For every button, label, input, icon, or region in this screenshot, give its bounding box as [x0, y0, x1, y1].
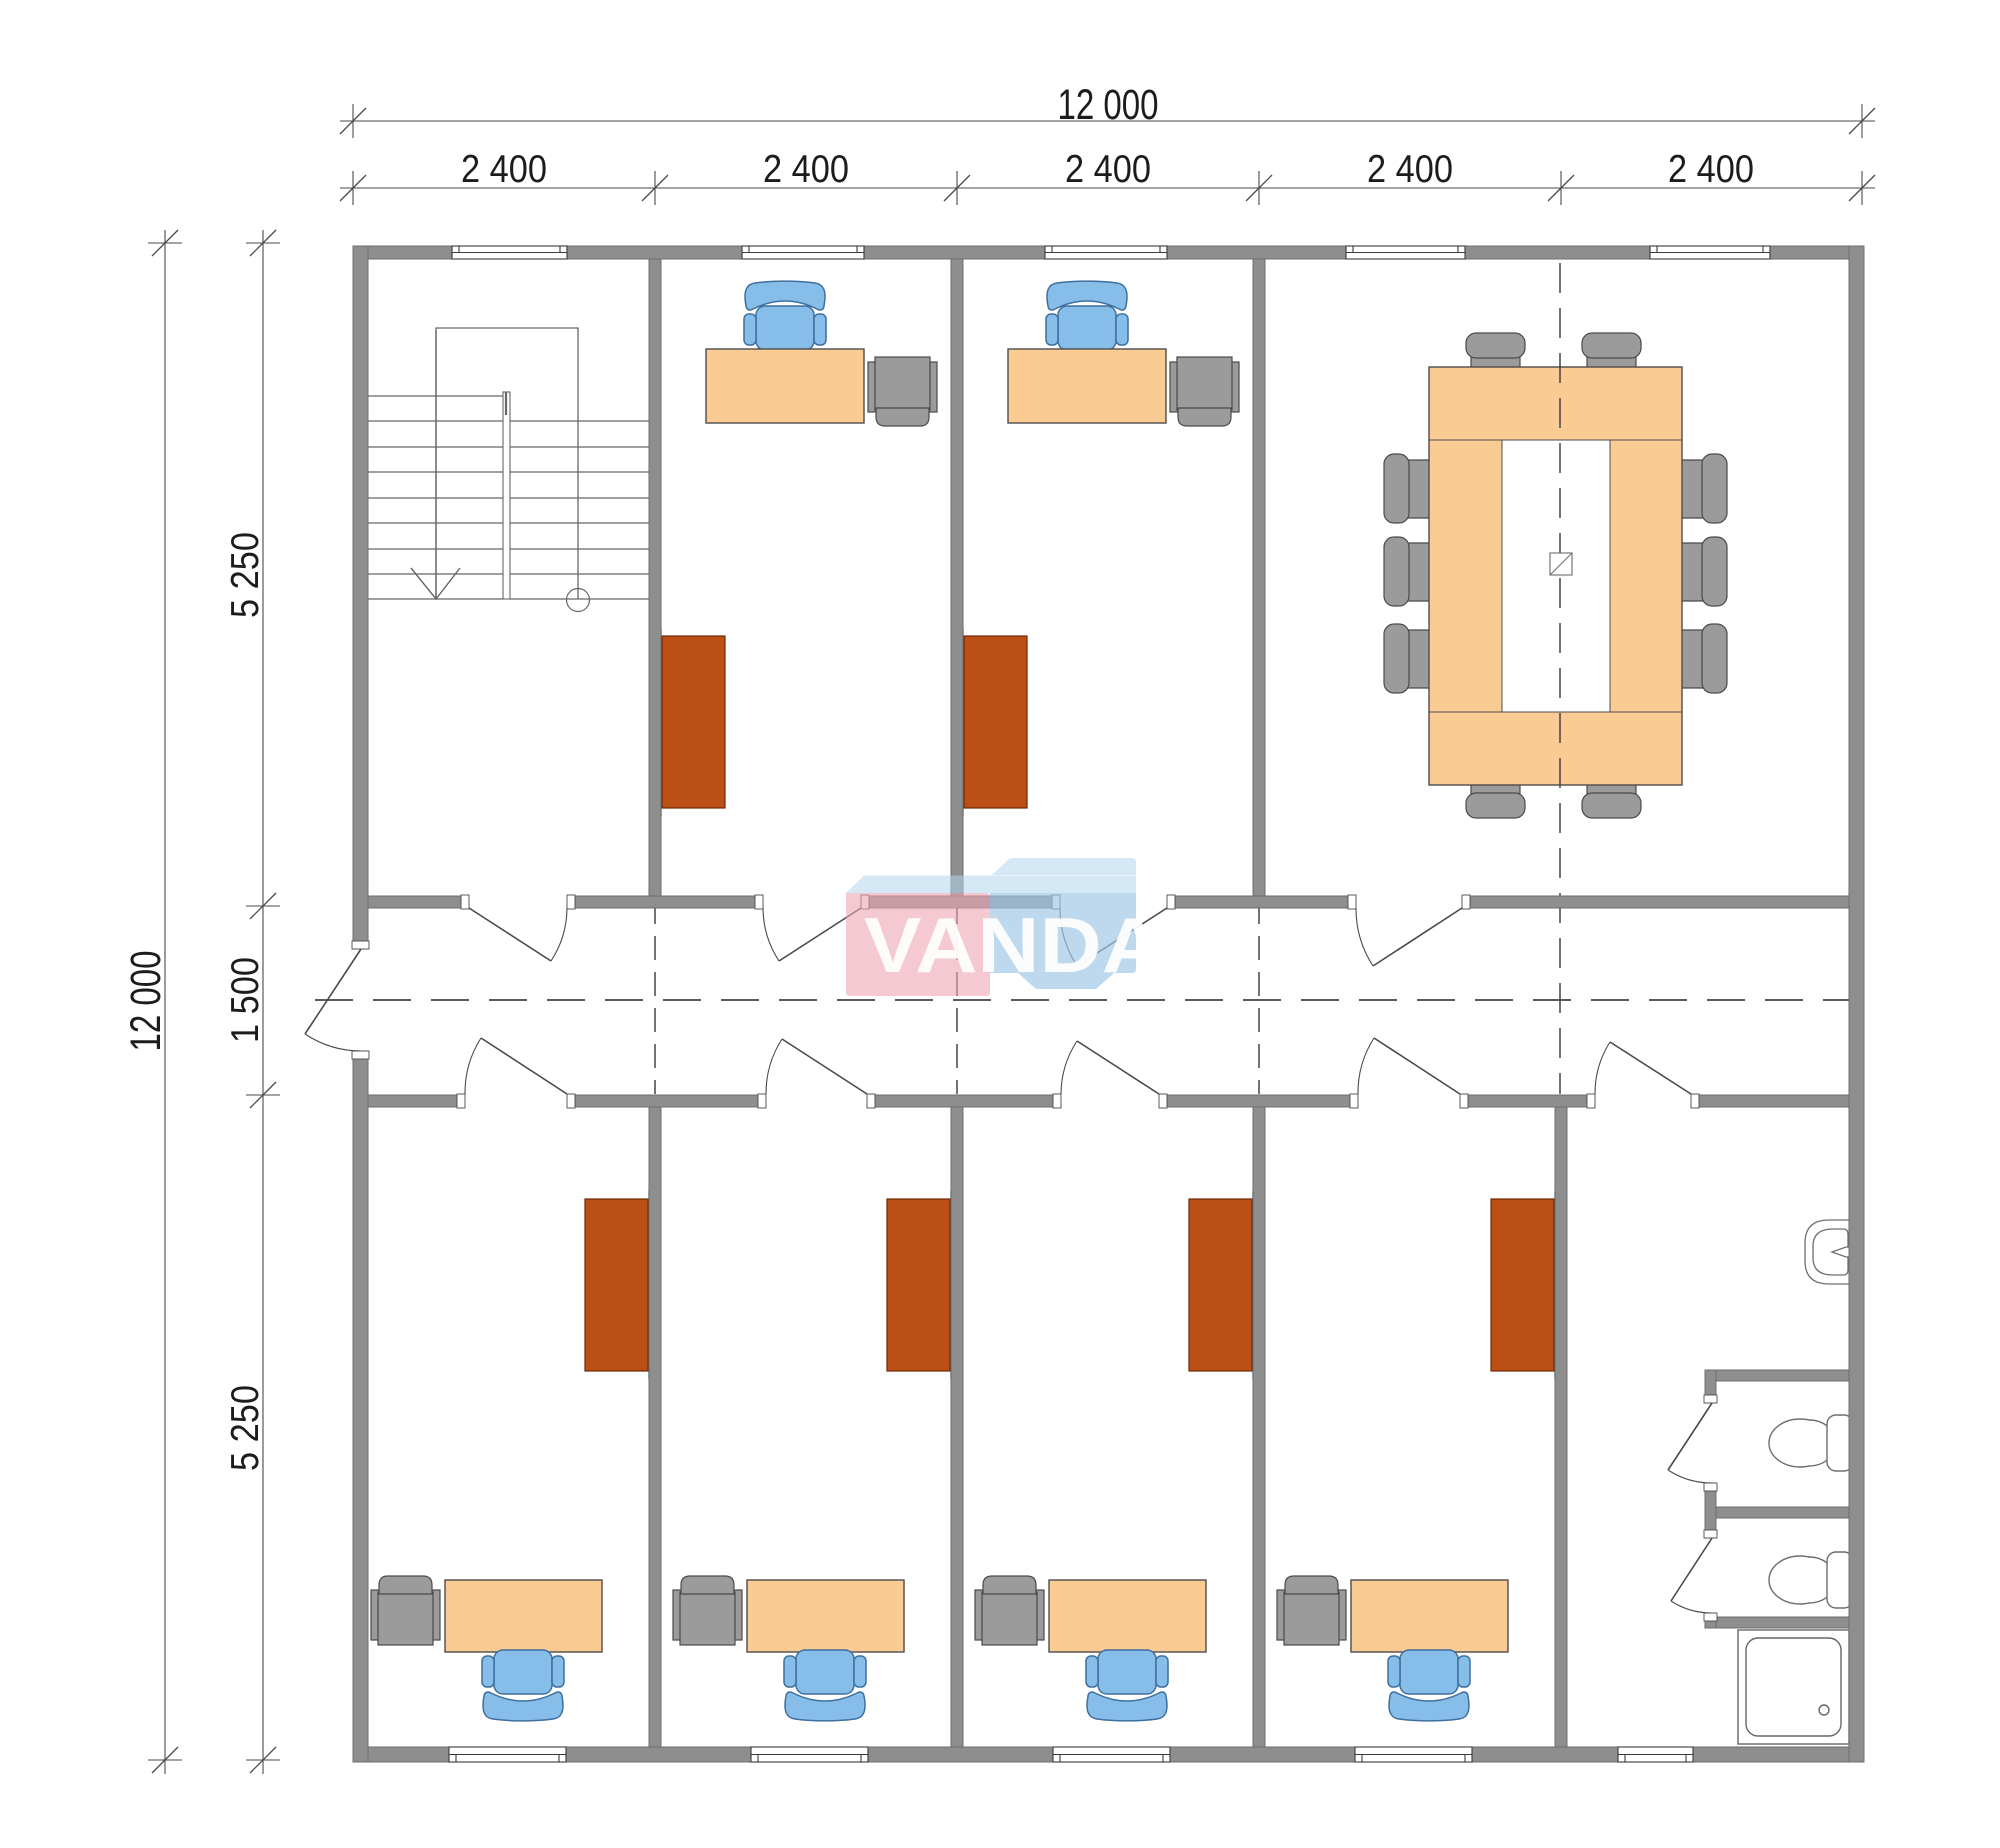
svg-text:VANDA: VANDA: [864, 901, 1164, 989]
svg-text:1 500: 1 500: [224, 957, 267, 1043]
svg-text:5 250: 5 250: [224, 1385, 267, 1471]
svg-text:2 400: 2 400: [461, 148, 547, 191]
svg-text:2 400: 2 400: [1367, 148, 1453, 191]
svg-text:12 000: 12 000: [1058, 81, 1159, 129]
svg-text:2 400: 2 400: [1668, 148, 1754, 191]
svg-text:2 400: 2 400: [1065, 148, 1151, 191]
svg-text:5 250: 5 250: [224, 532, 267, 618]
svg-text:12 000: 12 000: [122, 951, 170, 1052]
svg-text:2 400: 2 400: [763, 148, 849, 191]
